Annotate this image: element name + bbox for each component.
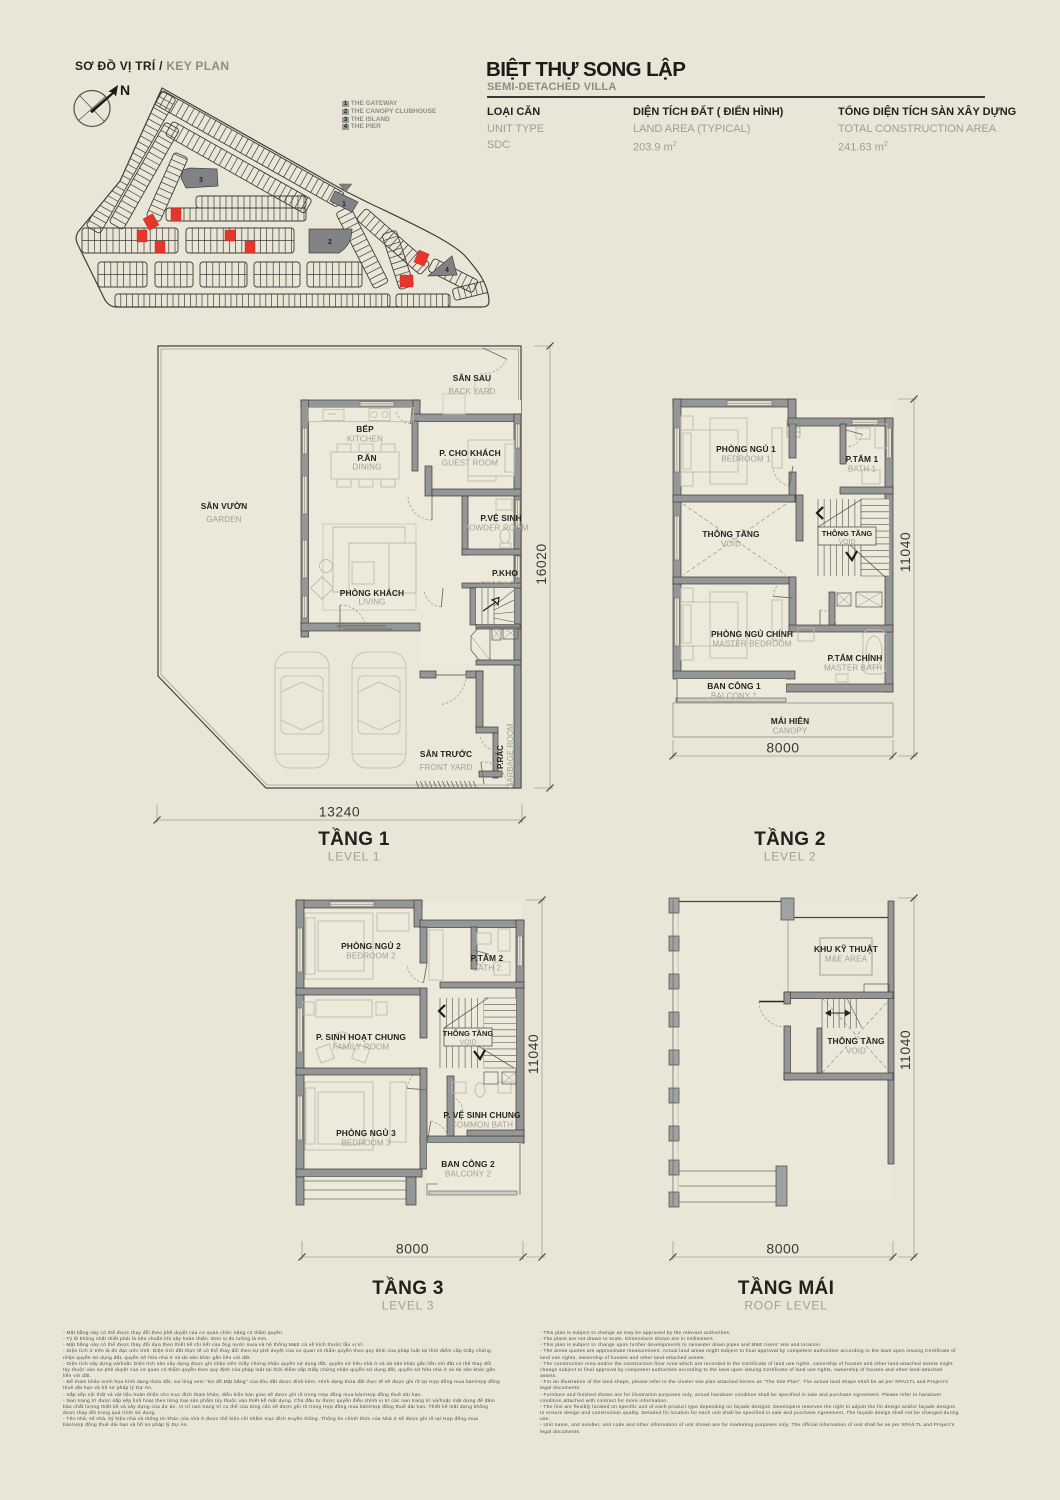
svg-text:8000: 8000 (766, 740, 799, 756)
svg-text:SÂN TRƯỚC: SÂN TRƯỚC (420, 748, 472, 759)
svg-text:P. CHO KHÁCH: P. CHO KHÁCH (439, 447, 501, 458)
svg-text:1: 1 (342, 201, 346, 208)
svg-text:P.TẮM 2: P.TẮM 2 (471, 953, 504, 963)
svg-text:8000: 8000 (766, 1241, 799, 1257)
svg-text:TẦNG 3: TẦNG 3 (372, 1277, 443, 1299)
svg-text:LEVEL 3: LEVEL 3 (382, 1299, 435, 1313)
svg-text:PHÒNG KHÁCH: PHÒNG KHÁCH (340, 587, 404, 598)
svg-text:BALCONY 2: BALCONY 2 (445, 1170, 492, 1179)
svg-text:KITCHEN: KITCHEN (347, 435, 383, 444)
svg-text:11040: 11040 (897, 1030, 913, 1070)
svg-text:FAMILY ROOM: FAMILY ROOM (333, 1043, 390, 1052)
svg-text:VOID: VOID (846, 1047, 866, 1056)
svg-text:P.KHO: P.KHO (492, 568, 518, 578)
svg-text:GARDEN: GARDEN (206, 515, 241, 524)
svg-text:VOID: VOID (459, 1040, 476, 1047)
svg-text:BẾP: BẾP (356, 424, 374, 434)
svg-text:BAN CÔNG 1: BAN CÔNG 1 (707, 680, 761, 691)
svg-text:SÂN VƯỜN: SÂN VƯỜN (201, 500, 248, 511)
svg-text:2: 2 (328, 239, 332, 246)
svg-text:VOID: VOID (721, 540, 741, 549)
svg-text:BEDROOM 2: BEDROOM 2 (346, 952, 396, 961)
svg-text:LIVING: LIVING (358, 598, 385, 607)
svg-text:8000: 8000 (396, 1241, 429, 1257)
svg-text:BACK YARD: BACK YARD (449, 387, 496, 396)
svg-text:DINING: DINING (353, 463, 382, 472)
svg-text:11040: 11040 (897, 532, 913, 572)
svg-text:PHÒNG NGỦ CHÍNH: PHÒNG NGỦ CHÍNH (711, 628, 793, 639)
svg-text:GUEST ROOM: GUEST ROOM (442, 459, 498, 468)
svg-text:MASTER BEDROOM: MASTER BEDROOM (712, 640, 791, 649)
svg-text:THÔNG TẦNG: THÔNG TẦNG (822, 528, 873, 538)
svg-text:13240: 13240 (319, 804, 360, 820)
svg-text:LEVEL 1: LEVEL 1 (328, 850, 381, 864)
svg-text:THÔNG TẦNG: THÔNG TẦNG (443, 1028, 494, 1038)
svg-text:P.TẮM 1: P.TẮM 1 (846, 454, 879, 464)
svg-text:BATH 1: BATH 1 (848, 465, 877, 474)
svg-text:ROOF LEVEL: ROOF LEVEL (744, 1299, 827, 1313)
svg-text:TẦNG MÁI: TẦNG MÁI (738, 1277, 834, 1299)
svg-text:TẦNG 2: TẦNG 2 (754, 828, 825, 850)
svg-text:P. SINH HOẠT CHUNG: P. SINH HOẠT CHUNG (316, 1032, 406, 1042)
svg-text:PHÒNG NGỦ 1: PHÒNG NGỦ 1 (716, 443, 776, 454)
svg-text:MASTER BATH: MASTER BATH (824, 664, 882, 673)
svg-text:GARBAGE ROOM: GARBAGE ROOM (506, 724, 515, 789)
svg-text:STORAGE: STORAGE (480, 581, 521, 590)
svg-text:PHÒNG NGỦ 2: PHÒNG NGỦ 2 (341, 940, 401, 951)
svg-text:CANOPY: CANOPY (773, 727, 808, 736)
svg-text:P.RÁC: P.RÁC (496, 745, 505, 769)
svg-text:3: 3 (199, 177, 203, 184)
svg-text:P.TẮM CHÍNH: P.TẮM CHÍNH (828, 652, 883, 663)
svg-text:LEVEL 2: LEVEL 2 (764, 850, 817, 864)
svg-text:BEDROOM 3: BEDROOM 3 (341, 1139, 391, 1148)
svg-text:POWDER ROOM: POWDER ROOM (464, 524, 529, 533)
svg-text:THÔNG TẦNG: THÔNG TẦNG (827, 1035, 884, 1046)
svg-text:KHU KỸ THUẬT: KHU KỸ THUẬT (814, 943, 879, 954)
svg-text:FRONT YARD: FRONT YARD (420, 763, 473, 772)
svg-text:M&E AREA: M&E AREA (825, 955, 868, 964)
svg-text:PHÒNG NGỦ 3: PHÒNG NGỦ 3 (336, 1127, 396, 1138)
svg-text:BALCONY 1: BALCONY 1 (711, 692, 758, 701)
svg-text:BAN CÔNG 2: BAN CÔNG 2 (441, 1158, 495, 1169)
svg-text:4: 4 (445, 267, 449, 274)
svg-text:BEDROOM 1: BEDROOM 1 (721, 455, 771, 464)
svg-text:MÁI HIÊN: MÁI HIÊN (771, 715, 810, 726)
svg-text:P. VỆ SINH CHUNG: P. VỆ SINH CHUNG (443, 1109, 520, 1120)
svg-text:BATH 2: BATH 2 (473, 964, 502, 973)
svg-text:TẦNG 1: TẦNG 1 (318, 828, 390, 850)
svg-text:SÂN SAU: SÂN SAU (453, 372, 491, 383)
svg-text:P.ĂN: P.ĂN (357, 453, 376, 463)
svg-text:VOID: VOID (838, 539, 855, 546)
svg-text:COMMON BATH: COMMON BATH (451, 1121, 513, 1130)
svg-text:P.VỆ SINH: P.VỆ SINH (480, 512, 521, 523)
svg-text:11040: 11040 (525, 1034, 541, 1074)
svg-text:THÔNG TẦNG: THÔNG TẦNG (702, 528, 759, 539)
svg-text:16020: 16020 (533, 543, 549, 584)
